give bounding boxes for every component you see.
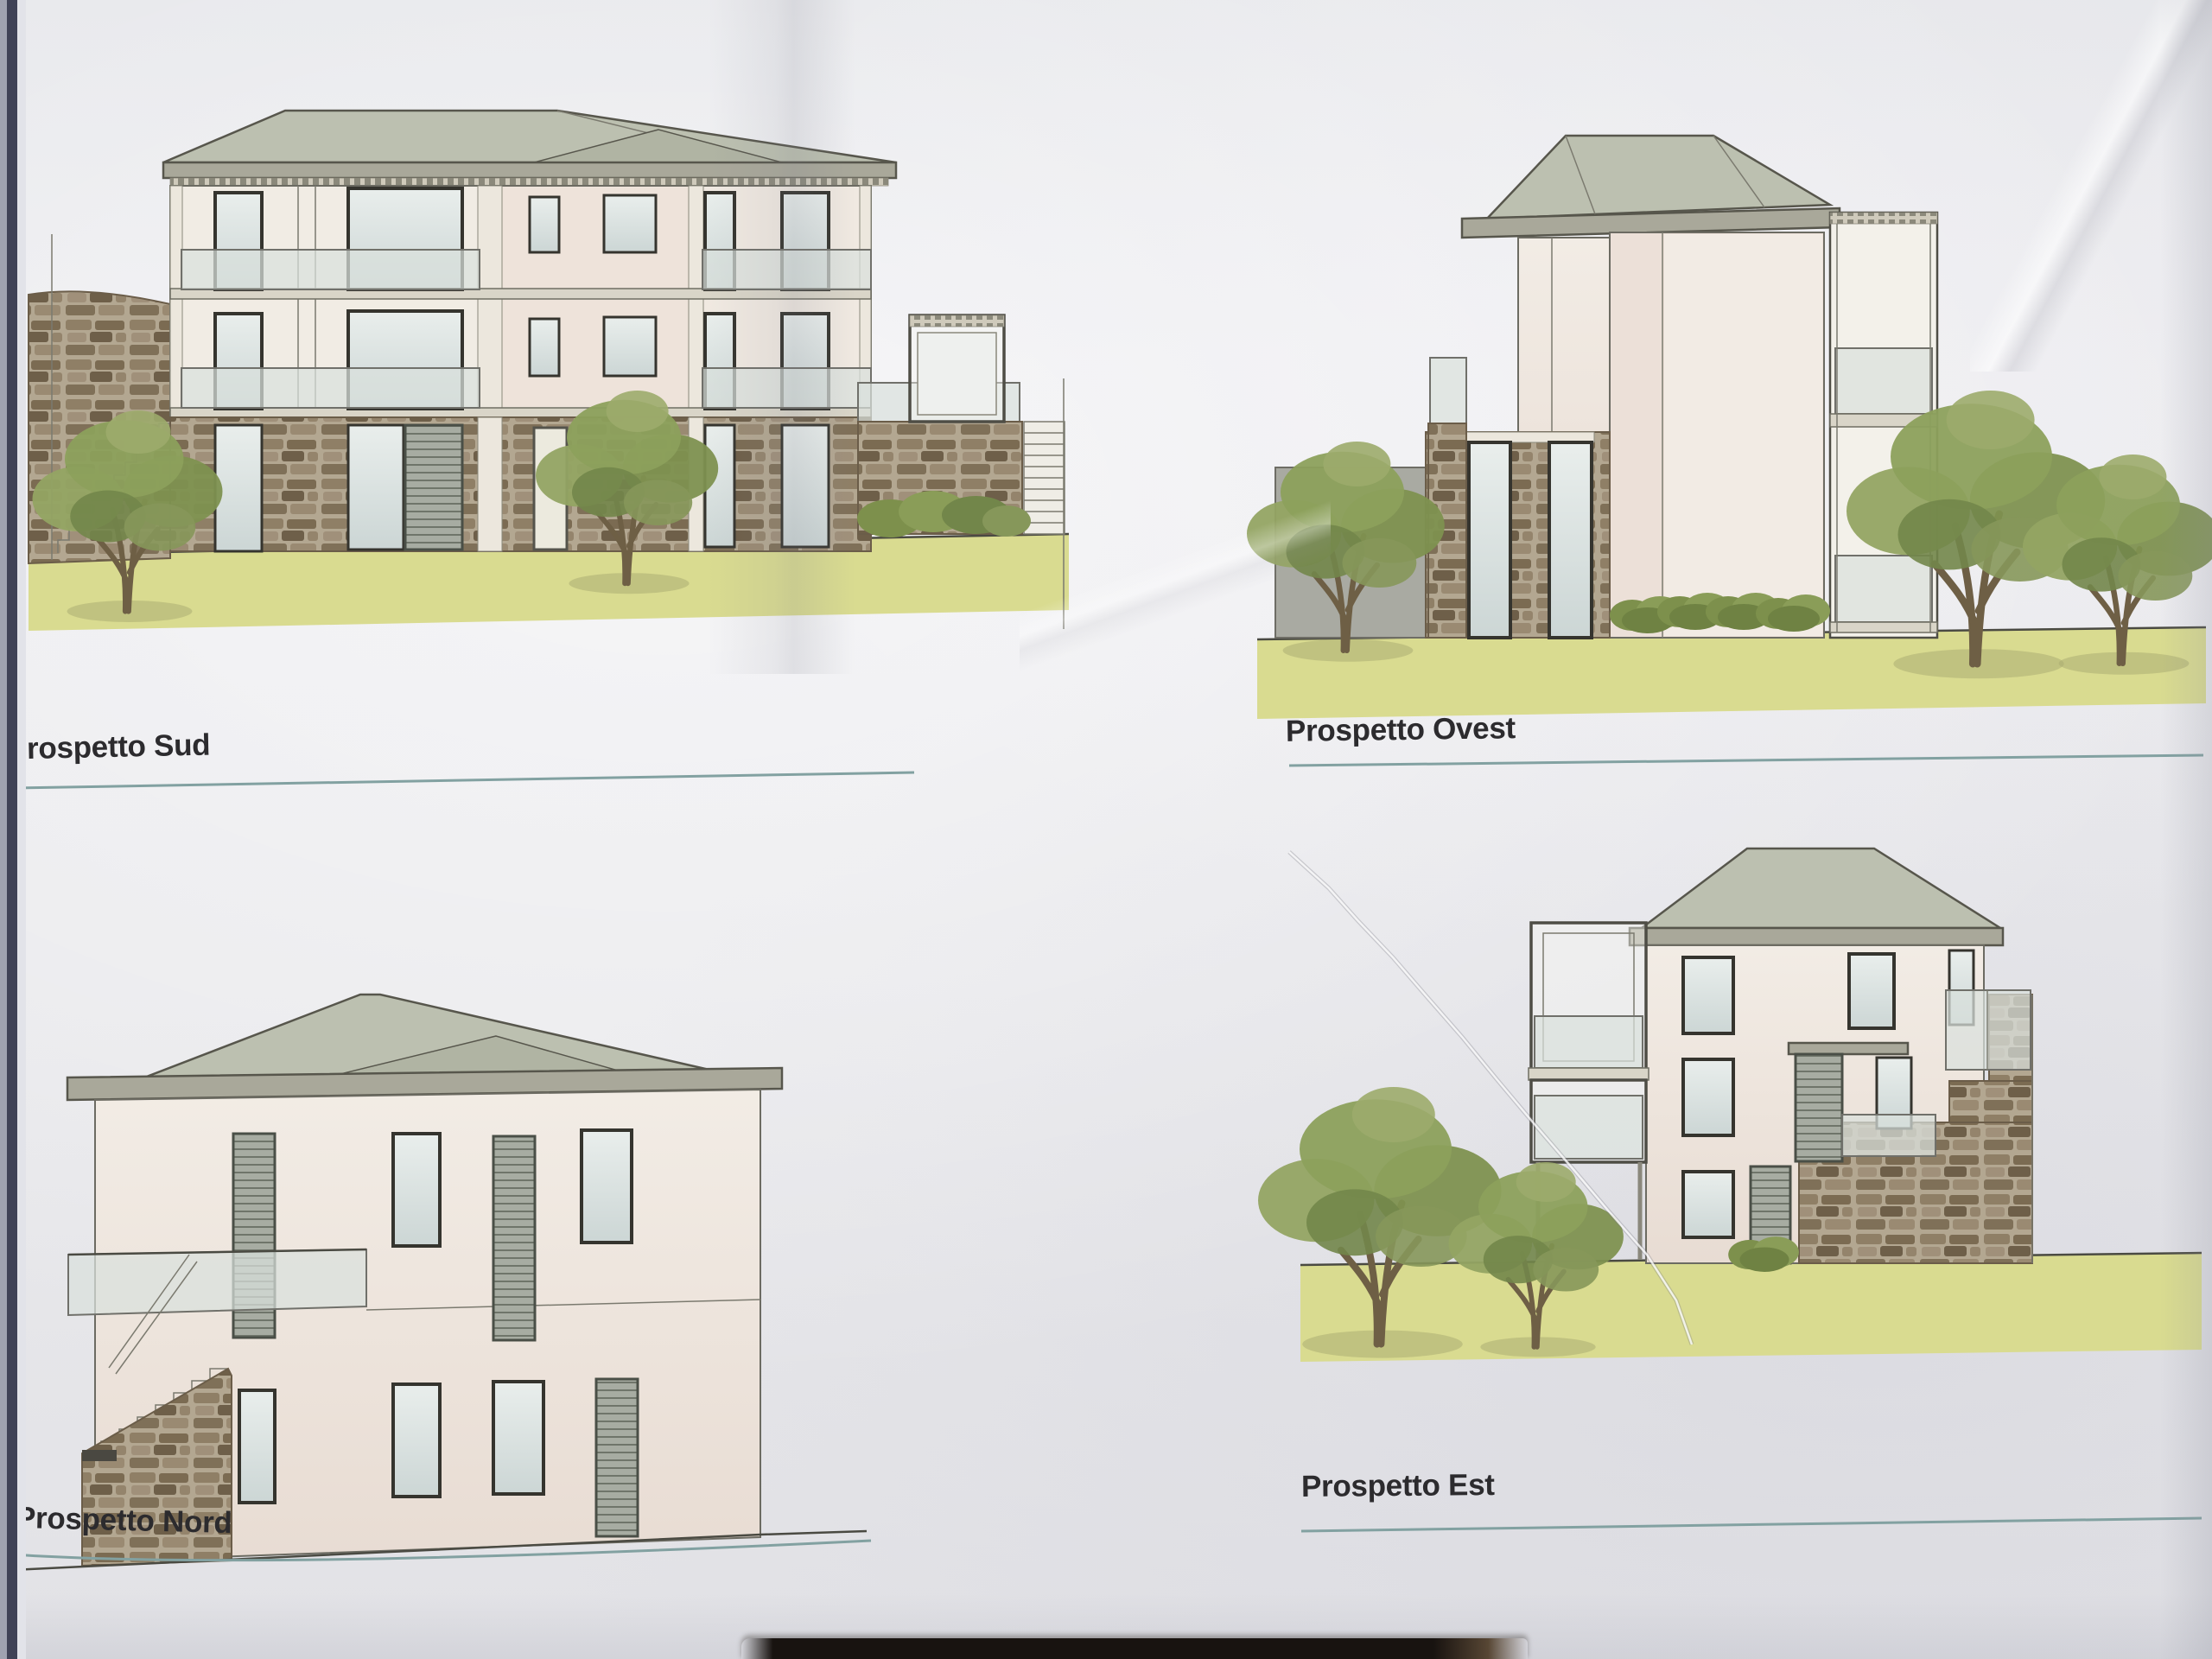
elevations-drawing [0,0,2212,1659]
page-curl-shadow [709,0,855,674]
page-left-edge [0,0,29,1659]
paper-crease-middle [1020,449,1331,709]
elevation-label-sud: Prospetto Sud [7,728,211,767]
ovest-roof [1462,136,1840,238]
page-right-shade [2160,0,2212,1659]
elevation-sud [29,111,1069,631]
est-roof [1630,849,2003,945]
elevation-nord [12,995,867,1570]
ovest-grass [1257,627,2206,719]
elevation-est [1258,849,2202,1362]
elevation-label-nord: Prospetto Nord [16,1501,232,1541]
elevation-label-est: Prospetto Est [1301,1468,1495,1504]
nord-roof [67,995,782,1100]
table-edge-dark-strip [741,1638,1528,1659]
elevation-label-ovest: Prospetto Ovest [1286,711,1516,749]
photographed-drawing-sheet: Prospetto Sud Prospetto Ovest Prospetto … [0,0,2212,1659]
